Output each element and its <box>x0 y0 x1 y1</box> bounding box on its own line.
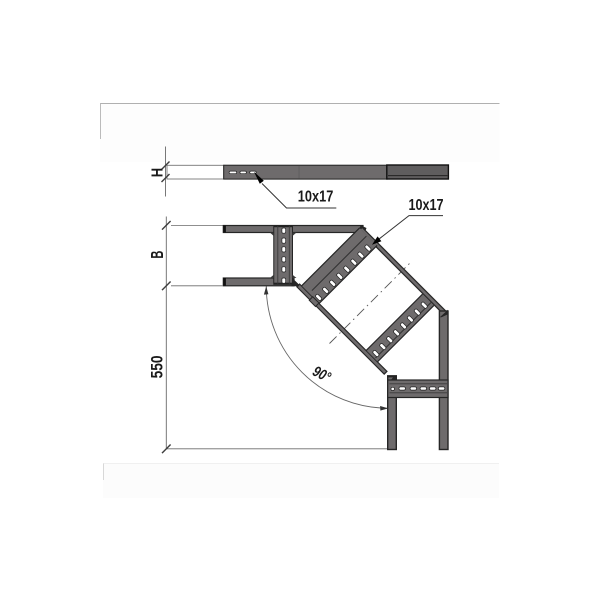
svg-text:10x17: 10x17 <box>298 189 334 206</box>
svg-text:550: 550 <box>148 355 167 378</box>
svg-text:B: B <box>147 251 167 259</box>
svg-text:10x17: 10x17 <box>409 197 444 214</box>
svg-text:H: H <box>150 168 167 177</box>
